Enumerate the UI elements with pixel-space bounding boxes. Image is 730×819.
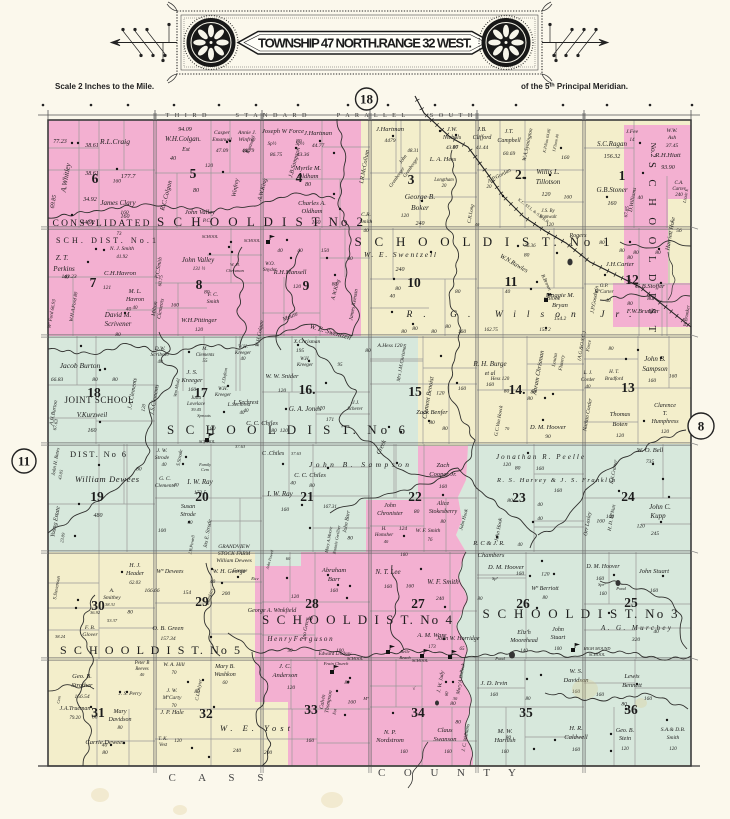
- svg-text:W.H.: W.H.: [300, 357, 310, 362]
- svg-text:Bradford: Bradford: [605, 377, 624, 382]
- svg-text:Homsher: Homsher: [374, 533, 393, 538]
- svg-text:Rogers: Rogers: [569, 233, 588, 239]
- svg-text:H. R.: H. R.: [568, 725, 583, 732]
- svg-text:X.Chrisman: X.Chrisman: [293, 339, 321, 345]
- svg-text:21: 21: [300, 489, 314, 504]
- svg-text:Davidson: Davidson: [108, 717, 132, 723]
- svg-text:J. S.: J. S.: [186, 369, 197, 376]
- svg-text:Rice: Rice: [250, 576, 259, 581]
- svg-text:T H I R D: T H I R D: [166, 112, 209, 119]
- svg-text:40: 40: [133, 306, 139, 311]
- svg-text:Peter B: Peter B: [134, 661, 150, 666]
- svg-text:80: 80: [515, 466, 521, 472]
- svg-text:173: 173: [428, 645, 436, 650]
- svg-text:V.Kurzweil: V.Kurzweil: [77, 411, 107, 419]
- svg-text:John: John: [552, 627, 564, 633]
- svg-text:MºCarty: MºCarty: [162, 695, 182, 701]
- svg-text:120: 120: [661, 429, 670, 435]
- svg-text:Smith: Smith: [667, 735, 680, 741]
- svg-text:W. H.: W. H.: [230, 262, 240, 267]
- svg-text:Wº Dewees: Wº Dewees: [156, 569, 184, 575]
- svg-text:70: 70: [505, 426, 510, 431]
- svg-text:Pond: Pond: [494, 656, 505, 661]
- svg-text:160: 160: [554, 488, 563, 494]
- svg-text:79.20: 79.20: [69, 716, 81, 721]
- svg-text:120: 120: [616, 433, 625, 439]
- svg-text:Mary B.: Mary B.: [214, 664, 235, 670]
- svg-text:Lewis: Lewis: [623, 673, 640, 680]
- svg-text:320: 320: [631, 637, 641, 643]
- svg-text:131 ½: 131 ½: [193, 267, 206, 272]
- svg-text:120: 120: [503, 462, 512, 468]
- svg-text:Jonathan R. Peelle: Jonathan R. Peelle: [496, 453, 584, 461]
- svg-text:John W. Horridge: John W. Horridge: [437, 636, 480, 642]
- svg-text:W. O. Bell: W. O. Bell: [637, 447, 664, 454]
- svg-text:160: 160: [88, 428, 97, 434]
- svg-text:20: 20: [487, 185, 493, 190]
- svg-text:40: 40: [653, 628, 659, 635]
- svg-text:76: 76: [428, 538, 434, 543]
- svg-text:John Valley: John Valley: [182, 256, 215, 264]
- svg-text:Frain Church: Frain Church: [323, 661, 349, 666]
- svg-text:36.36: 36.36: [524, 244, 536, 249]
- svg-text:80: 80: [445, 324, 451, 330]
- svg-text:80: 80: [455, 289, 461, 295]
- svg-text:Mº: Mº: [362, 696, 369, 701]
- svg-text:D. M. Hoover: D. M. Hoover: [585, 564, 620, 570]
- svg-text:14.: 14.: [509, 382, 526, 397]
- svg-text:80: 80: [309, 483, 315, 489]
- svg-text:Corder: Corder: [581, 378, 595, 383]
- svg-text:2.: 2.: [515, 167, 525, 182]
- svg-text:L. J.: L. J.: [583, 371, 593, 376]
- svg-text:W.O.: W.O.: [265, 262, 275, 267]
- svg-text:Ash: Ash: [667, 135, 677, 141]
- svg-text:Harnish: Harnish: [493, 737, 515, 744]
- svg-text:40: 40: [505, 288, 511, 295]
- svg-text:C.H.Havron: C.H.Havron: [104, 270, 136, 277]
- svg-text:80: 80: [118, 726, 124, 731]
- svg-text:Joseph W Force: Joseph W Force: [262, 128, 304, 135]
- svg-text:J. W.: J. W.: [157, 448, 168, 454]
- svg-text:80: 80: [627, 301, 633, 307]
- svg-text:160: 160: [516, 571, 525, 577]
- svg-text:19: 19: [90, 489, 104, 504]
- svg-text:John Valley: John Valley: [185, 209, 215, 216]
- svg-text:Mary: Mary: [113, 709, 127, 715]
- svg-text:120: 120: [278, 388, 287, 394]
- svg-text:SCHOOL: SCHOOL: [199, 439, 216, 444]
- svg-text:160: 160: [439, 484, 448, 490]
- svg-text:Chrisman: Chrisman: [226, 268, 245, 273]
- svg-text:William Dewees: William Dewees: [75, 474, 140, 484]
- svg-text:157.34: 157.34: [160, 635, 175, 642]
- svg-text:Alice: Alice: [436, 501, 450, 507]
- svg-text:80: 80: [455, 720, 461, 726]
- svg-text:240: 240: [436, 595, 445, 602]
- svg-text:J.H.Carter: J.H.Carter: [606, 261, 635, 268]
- svg-text:W. F. Smith: W. F. Smith: [427, 578, 459, 586]
- svg-text:A.: A.: [109, 588, 115, 594]
- svg-text:200: 200: [222, 591, 231, 597]
- svg-text:C.R.: C.R.: [361, 212, 371, 218]
- svg-text:80: 80: [633, 250, 639, 256]
- svg-text:200: 200: [264, 750, 273, 756]
- svg-text:Thomas: Thomas: [610, 411, 631, 418]
- svg-text:23: 23: [512, 490, 526, 505]
- svg-text:SCHOOL: SCHOOL: [244, 238, 261, 243]
- svg-text:-J.J.: -J.J.: [351, 401, 360, 406]
- svg-text:G. C.: G. C.: [159, 476, 171, 482]
- svg-text:of the 5th Principal Meridian.: of the 5th Principal Meridian.: [521, 82, 628, 91]
- svg-text:H.: H.: [381, 527, 387, 532]
- svg-text:Abraham: Abraham: [321, 567, 347, 574]
- svg-text:R.H.Hiatt: R.H.Hiatt: [654, 152, 680, 159]
- svg-text:Strode: Strode: [155, 455, 170, 461]
- svg-text:J.S. By: J.S. By: [541, 209, 555, 214]
- svg-text:40: 40: [390, 293, 396, 300]
- svg-text:M. L.: M. L.: [128, 289, 142, 295]
- svg-text:Z. T.: Z. T.: [56, 254, 69, 262]
- svg-text:H. T.: H. T.: [608, 370, 619, 375]
- svg-text:Zack Benfer: Zack Benfer: [416, 409, 448, 416]
- svg-text:80: 80: [102, 750, 108, 756]
- svg-text:40: 40: [290, 480, 296, 487]
- svg-text:40: 40: [363, 227, 369, 234]
- svg-text:80: 80: [401, 329, 407, 335]
- svg-text:Jacob Burton: Jacob Burton: [60, 361, 101, 370]
- svg-text:160: 160: [384, 584, 393, 590]
- svg-text:80: 80: [507, 498, 513, 504]
- svg-text:156.54: 156.54: [74, 693, 89, 700]
- svg-text:15: 15: [408, 384, 422, 399]
- svg-text:Romwalt: Romwalt: [538, 215, 557, 220]
- svg-text:Julia: Julia: [191, 396, 201, 401]
- svg-text:5: 5: [190, 166, 197, 181]
- svg-text:11: 11: [505, 274, 518, 289]
- svg-text:160: 160: [490, 692, 499, 698]
- svg-text:Sprº: Sprº: [598, 582, 606, 587]
- svg-text:40: 40: [162, 463, 168, 468]
- svg-text:Havron: Havron: [125, 297, 144, 303]
- svg-text:40: 40: [63, 274, 69, 281]
- svg-text:W.H.: W.H.: [238, 345, 248, 350]
- svg-text:80: 80: [431, 329, 437, 335]
- svg-text:41.44: 41.44: [476, 144, 489, 151]
- svg-text:W. A. Hill: W. A. Hill: [163, 662, 185, 668]
- svg-text:44.77: 44.77: [312, 142, 325, 149]
- svg-text:80: 80: [412, 326, 418, 332]
- svg-text:80: 80: [429, 420, 435, 426]
- svg-text:Stein: Stein: [619, 736, 631, 742]
- svg-text:70: 70: [172, 671, 178, 676]
- svg-text:George A. Winkfield: George A. Winkfield: [248, 607, 297, 614]
- svg-text:38.24: 38.24: [55, 634, 66, 639]
- svg-text:Bryan: Bryan: [552, 302, 568, 309]
- svg-text:Bennett: Bennett: [622, 682, 642, 689]
- svg-text:38.31: 38.31: [105, 602, 115, 607]
- svg-text:120: 120: [174, 739, 182, 744]
- svg-text:40: 40: [537, 515, 543, 522]
- svg-text:W.H.Pittinger: W.H.Pittinger: [181, 317, 217, 324]
- svg-text:80: 80: [442, 426, 448, 432]
- svg-text:Willis L.: Willis L.: [536, 168, 560, 176]
- svg-text:Claus: Claus: [437, 727, 453, 734]
- svg-text:Kreeger: Kreeger: [234, 351, 251, 356]
- svg-text:37.45: 37.45: [665, 142, 679, 149]
- svg-text:40: 40: [277, 247, 283, 254]
- svg-text:D. M. Hoover: D. M. Hoover: [529, 424, 567, 431]
- svg-text:Geo. B.: Geo. B.: [616, 728, 634, 734]
- svg-text:120: 120: [541, 571, 550, 577]
- svg-text:40: 40: [140, 672, 145, 677]
- svg-text:W.H.: W.H.: [218, 387, 228, 392]
- svg-text:S.A.& D.B.: S.A.& D.B.: [661, 727, 686, 733]
- svg-text:C. C. Chiles: C. C. Chiles: [294, 472, 326, 479]
- svg-text:H. J.: H. J.: [128, 563, 141, 569]
- svg-text:95: 95: [338, 363, 344, 368]
- svg-text:John C.: John C.: [649, 503, 671, 511]
- svg-text:Vest: Vest: [159, 743, 168, 748]
- svg-text:77.23: 77.23: [53, 139, 67, 145]
- svg-text:N. T. Lee: N. T. Lee: [374, 568, 400, 576]
- svg-text:Tillotson: Tillotson: [536, 178, 561, 186]
- svg-text:T.: T.: [663, 411, 667, 417]
- svg-text:80: 80: [655, 250, 661, 256]
- svg-text:L.Sechrest: L.Sechrest: [227, 402, 251, 408]
- svg-text:MºCarter: MºCarter: [593, 289, 613, 295]
- svg-text:120: 120: [542, 192, 551, 198]
- svg-text:Charles A.: Charles A.: [298, 200, 326, 207]
- svg-text:100: 100: [158, 528, 167, 534]
- svg-text:80: 80: [210, 426, 216, 432]
- svg-text:Kreeger: Kreeger: [180, 377, 203, 384]
- svg-text:100: 100: [336, 649, 344, 654]
- svg-text:40: 40: [158, 360, 164, 365]
- svg-text:80: 80: [92, 714, 98, 720]
- svg-text:40: 40: [240, 411, 246, 416]
- svg-text:HIGH MOUND: HIGH MOUND: [583, 646, 611, 651]
- svg-text:TOWNSHIP 47 NORTH.RANGE 32 WES: TOWNSHIP 47 NORTH.RANGE 32 WEST.: [258, 36, 472, 51]
- svg-text:36.92: 36.92: [90, 610, 101, 615]
- svg-text:S.C.Ragan: S.C.Ragan: [597, 140, 627, 148]
- svg-text:124: 124: [399, 525, 408, 532]
- svg-text:53.37: 53.37: [107, 618, 118, 623]
- svg-text:Strode: Strode: [180, 512, 196, 518]
- svg-text:N. P.: N. P.: [383, 729, 397, 736]
- svg-text:Annie J.: Annie J.: [237, 130, 256, 136]
- svg-text:John: John: [384, 503, 396, 509]
- svg-text:41.92: 41.92: [116, 255, 128, 260]
- svg-text:60: 60: [286, 556, 291, 561]
- svg-text:W. E. Swentzell: W. E. Swentzell: [364, 250, 436, 259]
- svg-text:Smith: Smith: [207, 299, 220, 305]
- svg-text:195: 195: [296, 348, 305, 354]
- svg-text:245: 245: [651, 530, 660, 537]
- svg-text:F. B.: F. B.: [84, 625, 95, 631]
- svg-text:80: 80: [92, 377, 98, 383]
- svg-text:JOINT SCHOOL: JOINT SCHOOL: [65, 395, 134, 405]
- svg-text:120: 120: [293, 284, 302, 290]
- svg-text:Smithey: Smithey: [103, 595, 121, 601]
- svg-text:Campbell: Campbell: [497, 138, 521, 144]
- svg-text:Cem: Cem: [201, 467, 209, 472]
- svg-text:Chronister: Chronister: [377, 511, 403, 517]
- svg-text:66.83: 66.83: [51, 377, 64, 383]
- svg-text:SCHOOL: SCHOOL: [589, 652, 606, 657]
- svg-text:240: 240: [396, 266, 405, 273]
- svg-text:24: 24: [621, 489, 635, 504]
- svg-text:9: 9: [303, 278, 310, 293]
- svg-text:Scribner: Scribner: [151, 352, 171, 358]
- svg-text:Geo. B.: Geo. B.: [72, 673, 92, 680]
- svg-text:120: 120: [401, 213, 410, 219]
- svg-text:Sampson: Sampson: [642, 365, 668, 373]
- svg-text:Stuart: Stuart: [551, 635, 566, 641]
- svg-text:160: 160: [113, 178, 122, 184]
- svg-text:34.92: 34.92: [80, 219, 95, 226]
- svg-text:60: 60: [223, 681, 229, 686]
- svg-text:480: 480: [94, 512, 103, 519]
- svg-text:120: 120: [280, 428, 289, 434]
- svg-text:56: 56: [676, 228, 682, 234]
- svg-text:Casper: Casper: [214, 130, 231, 136]
- svg-text:R. C & J. R.: R. C & J. R.: [472, 540, 505, 547]
- svg-text:Oldham: Oldham: [302, 208, 323, 215]
- svg-text:160: 160: [596, 692, 605, 698]
- svg-text:J.B.: J.B.: [477, 127, 486, 133]
- svg-text:40: 40: [126, 305, 132, 312]
- svg-text:13: 13: [621, 380, 635, 395]
- svg-text:40: 40: [188, 521, 194, 526]
- svg-text:65: 65: [460, 647, 466, 652]
- svg-text:37.63: 37.63: [291, 451, 302, 456]
- svg-text:Boker: Boker: [411, 203, 429, 212]
- svg-text:Sprouts: Sprouts: [197, 413, 211, 418]
- svg-text:Strother: Strother: [71, 682, 93, 689]
- svg-text:28: 28: [305, 596, 319, 611]
- svg-text:1: 1: [619, 168, 626, 183]
- svg-text:Spº: Spº: [492, 576, 499, 581]
- svg-text:120: 120: [195, 327, 204, 333]
- svg-text:160: 160: [596, 518, 605, 524]
- svg-text:160: 160: [608, 201, 617, 207]
- svg-text:W. W. Snider: W. W. Snider: [265, 373, 299, 380]
- svg-text:160: 160: [536, 466, 545, 472]
- svg-text:John B.: John B.: [644, 355, 666, 363]
- svg-text:Perkins: Perkins: [52, 265, 75, 273]
- svg-text:I. W. Ray: I. W. Ray: [266, 490, 293, 498]
- svg-text:166.66: 166.66: [144, 588, 159, 594]
- svg-text:J. C.: J. C.: [279, 663, 291, 670]
- svg-text:80: 80: [127, 609, 133, 615]
- svg-text:W. F. Smith: W. F. Smith: [416, 528, 441, 534]
- svg-text:N. J. Smith: N. J. Smith: [109, 246, 134, 252]
- svg-text:James Clary: James Clary: [100, 199, 136, 207]
- svg-text:Eliz'h: Eliz'h: [516, 630, 531, 636]
- svg-text:55: 55: [203, 359, 209, 364]
- svg-text:C.A.: C.A.: [675, 181, 684, 186]
- svg-text:160: 160: [400, 750, 408, 755]
- svg-text:S C H O O L D I S T No 2: S C H O O L D I S T No 2: [157, 214, 363, 229]
- svg-text:154 2: 154 2: [539, 328, 551, 333]
- svg-text:Hess 120: Hess 120: [490, 377, 510, 382]
- svg-text:S T A N D A R D: S T A N D A R D: [236, 112, 309, 119]
- svg-text:160: 160: [306, 738, 315, 744]
- svg-text:Scherer: Scherer: [347, 407, 362, 412]
- svg-text:Clifford: Clifford: [473, 134, 493, 141]
- svg-text:162.75: 162.75: [484, 328, 498, 333]
- svg-text:Belle: Belle: [400, 649, 409, 654]
- svg-text:160: 160: [486, 382, 495, 388]
- svg-text:Snyder: Snyder: [263, 268, 277, 273]
- svg-text:120: 120: [317, 405, 326, 411]
- svg-text:Wº Berriott: Wº Berriott: [531, 586, 559, 592]
- svg-text:George: George: [233, 569, 249, 574]
- svg-text:J. S. Perry: J. S. Perry: [118, 691, 142, 697]
- svg-text:80: 80: [530, 390, 536, 396]
- svg-text:40: 40: [637, 194, 643, 201]
- svg-text:167.31: 167.31: [323, 505, 337, 510]
- svg-text:Kreeger: Kreeger: [214, 393, 231, 398]
- svg-text:80: 80: [194, 689, 200, 695]
- svg-text:80: 80: [395, 286, 401, 292]
- svg-text:George B.: George B.: [405, 192, 436, 201]
- svg-text:S C H O O L D I S T. No 4: S C H O O L D I S T. No 4: [262, 612, 453, 627]
- svg-text:120: 120: [637, 524, 646, 530]
- svg-text:SCHOOL: SCHOOL: [347, 656, 364, 661]
- svg-text:240: 240: [233, 747, 242, 754]
- svg-text:80: 80: [506, 735, 512, 741]
- svg-text:40: 40: [606, 299, 612, 304]
- svg-text:80: 80: [136, 466, 142, 472]
- svg-text:80: 80: [204, 289, 210, 295]
- svg-text:37.63: 37.63: [235, 444, 246, 449]
- svg-text:J.W.: J.W.: [447, 127, 457, 133]
- svg-text:160: 160: [171, 302, 180, 308]
- svg-text:80: 80: [599, 240, 605, 246]
- svg-text:80: 80: [619, 248, 625, 254]
- svg-text:34: 34: [411, 705, 425, 720]
- svg-text:Humphress: Humphress: [650, 419, 679, 425]
- svg-text:173.5: 173.5: [194, 490, 207, 496]
- svg-text:160: 160: [400, 553, 408, 558]
- svg-text:80: 80: [543, 596, 549, 601]
- svg-text:11: 11: [18, 454, 30, 469]
- svg-text:160: 160: [188, 387, 197, 393]
- svg-text:80: 80: [332, 281, 338, 287]
- svg-text:M.: M.: [201, 347, 207, 352]
- svg-text:80: 80: [441, 520, 447, 525]
- svg-text:40: 40: [241, 357, 247, 362]
- svg-text:94.09: 94.09: [178, 126, 192, 133]
- svg-text:J.Hartman: J.Hartman: [376, 126, 404, 133]
- svg-text:160: 160: [669, 373, 678, 379]
- svg-text:J.A.Trueman: J.A.Trueman: [60, 706, 91, 712]
- svg-text:Clarence: Clarence: [654, 403, 676, 409]
- svg-text:Header: Header: [125, 571, 145, 577]
- svg-text:Pond: Pond: [615, 586, 626, 591]
- svg-text:160: 160: [458, 386, 467, 392]
- svg-text:O. B. Green: O. B. Green: [152, 625, 183, 632]
- svg-text:80: 80: [527, 396, 533, 402]
- svg-text:John Stuart: John Stuart: [639, 568, 669, 575]
- svg-text:40: 40: [586, 385, 592, 390]
- svg-text:160: 160: [312, 220, 321, 226]
- svg-text:154: 154: [183, 589, 192, 596]
- svg-text:W.H.Colgan.: W.H.Colgan.: [165, 135, 201, 143]
- svg-text:160: 160: [596, 576, 605, 582]
